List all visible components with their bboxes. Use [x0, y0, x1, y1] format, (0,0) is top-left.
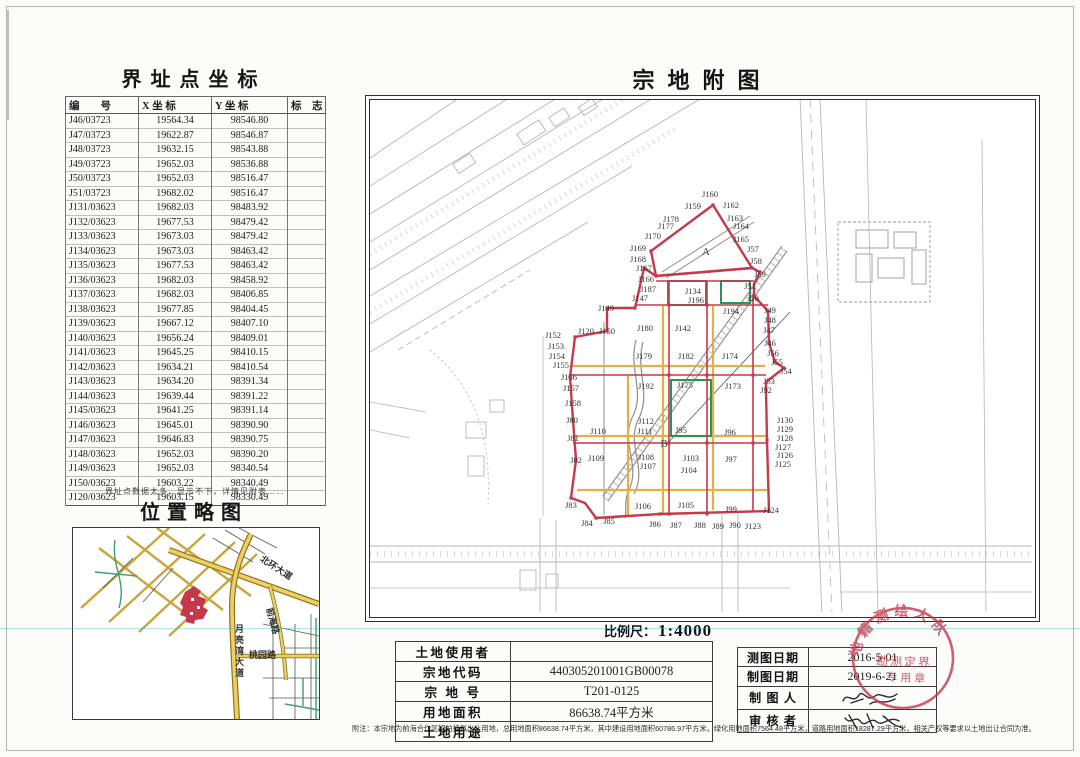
coord-row: J141/0362319645.2598410.15	[66, 346, 326, 361]
boundary-point-label: J167	[636, 263, 652, 273]
boundary-point-label: J156	[561, 372, 577, 382]
land-info-row-value: 86638.74平方米	[511, 702, 713, 722]
road-name-label: 前海路	[263, 606, 283, 635]
boundary-point-label: J179	[636, 351, 652, 361]
parcel-point-labels: J159J160J162J163J164J165J57J58J59J51J50J…	[370, 100, 1035, 617]
scan-artifact-line	[0, 628, 1080, 629]
land-info-row: 宗 地 号T201-0125	[396, 682, 713, 702]
scale-bar: 比例尺： 1:4000	[604, 621, 712, 641]
boundary-point-label: J96	[724, 427, 736, 437]
boundary-point-label: J95	[675, 425, 687, 435]
boundary-point-label: J152	[545, 330, 561, 340]
boundary-point-label: J124	[763, 505, 779, 515]
boundary-point-label: J149	[598, 303, 614, 313]
boundary-point-label: J182	[678, 351, 694, 361]
boundary-point-label: J104	[681, 465, 697, 475]
land-info-row-label: 土地使用者	[396, 642, 511, 662]
coord-row: J132/0362319677.5398479.42	[66, 215, 326, 230]
land-info-row: 用地面积86638.74平方米	[396, 702, 713, 722]
road-name-label: 北环大道	[258, 552, 295, 583]
coord-row: J50/0372319652.0398516.47	[66, 172, 326, 187]
boundary-point-label: J51	[744, 281, 756, 291]
boundary-point-label: J89	[712, 521, 724, 531]
coord-row: J139/0362319667.1298407.10	[66, 317, 326, 332]
boundary-point-label: J194	[723, 306, 739, 316]
boundary-point-label: J90	[729, 520, 741, 530]
boundary-point-label: J87	[670, 520, 682, 530]
coord-row: J51/0372319682.0298516.47	[66, 186, 326, 201]
boundary-point-label: J125	[775, 459, 791, 469]
boundary-point-label: J173	[725, 381, 741, 391]
boundary-point-label: J123	[745, 521, 761, 531]
coord-table-header: 编 号X 坐 标Y 坐 标标 志	[66, 97, 326, 114]
land-info-row-value: 440305201001GB00078	[511, 662, 713, 682]
coord-row: J145/0362319641.2598391.14	[66, 404, 326, 419]
land-info-row-label: 用地面积	[396, 702, 511, 722]
scan-edge-artifact	[7, 10, 9, 120]
boundary-point-label: J150	[599, 326, 615, 336]
boundary-point-label: J112	[638, 416, 654, 426]
coord-col-header: 标 志	[288, 97, 326, 114]
coord-row: J148/0362319652.0398390.20	[66, 447, 326, 462]
boundary-point-label: J180	[637, 323, 653, 333]
coord-row: J133/0362319673.0398479.42	[66, 230, 326, 245]
loc-road-labels: 北环大道前海路月亮湾大道桃园路	[73, 528, 319, 719]
boundary-point-label: J83	[565, 500, 577, 510]
boundary-point-label: J166	[638, 274, 654, 284]
boundary-point-label: J153	[548, 341, 564, 351]
boundary-point-label: J84	[581, 518, 593, 528]
boundary-point-label: J48	[764, 315, 776, 325]
boundary-point-label: J155	[553, 360, 569, 370]
boundary-point-label: J106	[635, 501, 651, 511]
coord-row: J140/0362319656.2498409.01	[66, 331, 326, 346]
boundary-point-label: J88	[694, 520, 706, 530]
land-info-row-value	[511, 642, 713, 662]
coord-row: J134/0362319673.0398463.42	[66, 244, 326, 259]
road-name-label: 月亮湾大道	[233, 624, 246, 679]
coord-row: J149/0362319652.0398340.54	[66, 462, 326, 477]
location-map: 北环大道前海路月亮湾大道桃园路	[72, 527, 320, 720]
coord-row: J147/0362319646.8398390.75	[66, 433, 326, 448]
parcel-map-frame: J159J160J162J163J164J165J57J58J59J51J50J…	[365, 95, 1040, 622]
zone-label: A	[702, 246, 710, 258]
drawing-info-row-label: 测图日期	[738, 648, 809, 667]
boundary-point-label: J120	[578, 326, 594, 336]
boundary-point-label: J170	[645, 231, 661, 241]
boundary-point-label: J175	[677, 380, 693, 390]
boundary-point-label: J109	[588, 453, 604, 463]
coord-table-body: J46/0372319564.3498546.80J47/0372319622.…	[66, 114, 326, 506]
coord-row: J137/0362319682.0398406.85	[66, 288, 326, 303]
boundary-point-label: J82	[570, 455, 582, 465]
coord-row: J142/0362319634.2198410.54	[66, 360, 326, 375]
coord-row: J146/0362319645.0198390.90	[66, 418, 326, 433]
land-info-row: 宗地代码440305201001GB00078	[396, 662, 713, 682]
land-info-row-value: T201-0125	[511, 682, 713, 702]
land-info-row-label: 宗地代码	[396, 662, 511, 682]
boundary-point-label: J85	[603, 516, 615, 526]
drawing-info-row-label: 制 图 人	[738, 686, 809, 709]
boundary-point-label: J97	[725, 454, 737, 464]
boundary-point-label: J162	[723, 200, 739, 210]
boundary-point-label: J154	[549, 351, 565, 361]
drawing-info-row-label: 制图日期	[738, 667, 809, 686]
boundary-point-label: J99	[725, 504, 737, 514]
parcel-map-canvas: J159J160J162J163J164J165J57J58J59J51J50J…	[369, 99, 1036, 618]
coord-col-header: Y 坐 标	[212, 97, 288, 114]
coord-row: J47/0372319622.8798546.87	[66, 128, 326, 143]
boundary-point-label: J86	[649, 519, 661, 529]
boundary-point-label: J50	[747, 293, 759, 303]
coord-row: J138/0362319677.8598404.45	[66, 302, 326, 317]
road-name-label: 桃园路	[249, 648, 276, 661]
boundary-point-label: J147	[632, 293, 648, 303]
boundary-point-label: J59	[754, 269, 766, 279]
coord-table-title: 界址点坐标	[60, 63, 328, 92]
parcel-map-title: 宗地附图	[365, 63, 1040, 95]
boundary-point-label: J58	[750, 256, 762, 266]
boundary-point-label: J49	[764, 305, 776, 315]
boundary-point-label: J54	[780, 366, 792, 376]
boundary-point-label: J159	[685, 201, 701, 211]
coord-row: J46/0372319564.3498546.80	[66, 114, 326, 129]
scale-label: 比例尺：	[604, 621, 656, 640]
coord-row: J136/0362319682.0398458.92	[66, 273, 326, 288]
boundary-point-label: J52	[760, 385, 772, 395]
coord-row: J135/0362319677.5398463.42	[66, 259, 326, 274]
boundary-point-label: J157	[563, 383, 579, 393]
zone-label: B	[660, 438, 667, 450]
location-map-title: 位置略图	[60, 496, 328, 525]
boundary-point-label: J192	[638, 381, 654, 391]
land-info-row: 土地使用者	[396, 642, 713, 662]
boundary-point-label: J164	[733, 221, 749, 231]
boundary-point-label: J81	[567, 433, 579, 443]
boundary-point-label: J187	[640, 284, 656, 294]
coord-col-header: X 坐 标	[139, 97, 212, 114]
scanned-document-page: 界址点坐标 编 号X 坐 标Y 坐 标标 志 J46/0372319564.34…	[0, 0, 1080, 757]
boundary-point-label: J107	[640, 461, 656, 471]
coord-row: J49/0372319652.0398536.88	[66, 157, 326, 172]
boundary-point-label: J174	[722, 351, 738, 361]
boundary-point-label: J165	[733, 234, 749, 244]
boundary-point-label: J46	[764, 338, 776, 348]
coord-row: J131/0362319682.0398483.92	[66, 201, 326, 216]
boundary-point-label: J196	[688, 295, 704, 305]
footnote: 附注：本宗地为前海合作区招拍挂拟出让用地，总用地面积86638.74平方米，其中…	[352, 724, 1068, 734]
seal-inner-text-2: 专用章	[886, 670, 928, 685]
boundary-point-label: J57	[747, 244, 759, 254]
coord-row: J144/0362319639.4498391.22	[66, 389, 326, 404]
land-info-row-label: 宗 地 号	[396, 682, 511, 702]
boundary-point-label: J105	[678, 500, 694, 510]
boundary-point-label: J158	[565, 398, 581, 408]
boundary-point-label: J103	[683, 453, 699, 463]
boundary-point-label: J111	[637, 426, 652, 436]
boundary-point-label: J178	[663, 214, 679, 224]
scale-value: 1:4000	[658, 621, 712, 641]
boundary-point-label: J47	[763, 325, 775, 335]
boundary-point-label: J160	[702, 189, 718, 199]
boundary-point-label: J142	[675, 323, 691, 333]
boundary-point-label: J168	[630, 254, 646, 264]
boundary-point-label: J80	[566, 415, 578, 425]
boundary-point-coord-table: 编 号X 坐 标Y 坐 标标 志 J46/0372319564.3498546.…	[65, 96, 326, 506]
boundary-point-label: J169	[630, 243, 646, 253]
coord-row: J48/0372319632.1598543.88	[66, 143, 326, 158]
boundary-point-label: J110	[590, 426, 606, 436]
seal-inner-text-1: 勘测定界	[876, 653, 933, 670]
coord-row: J143/0362319634.2098391.34	[66, 375, 326, 390]
coord-col-header: 编 号	[66, 97, 139, 114]
